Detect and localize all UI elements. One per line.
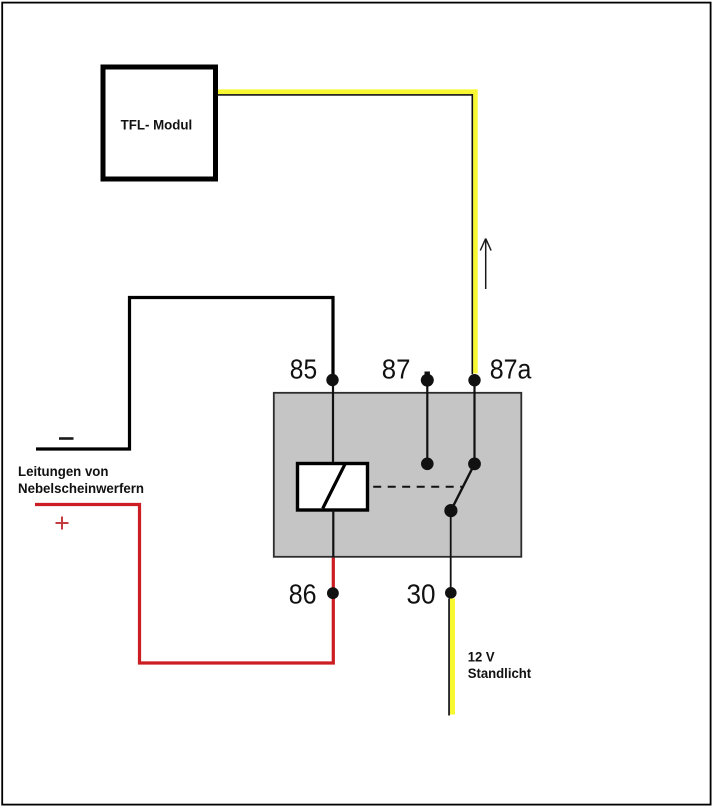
svg-text:87a: 87a <box>490 353 532 384</box>
svg-text:Leitungen von: Leitungen von <box>18 463 109 479</box>
svg-text:12 V: 12 V <box>468 649 496 665</box>
svg-text:30: 30 <box>407 578 436 609</box>
svg-text:87: 87 <box>382 353 411 384</box>
svg-text:Nebelscheinwerfern: Nebelscheinwerfern <box>18 480 144 496</box>
svg-text:86: 86 <box>289 578 317 609</box>
svg-text:Standlicht: Standlicht <box>468 665 532 681</box>
svg-text:85: 85 <box>290 353 317 384</box>
svg-text:TFL- Modul: TFL- Modul <box>121 117 193 133</box>
